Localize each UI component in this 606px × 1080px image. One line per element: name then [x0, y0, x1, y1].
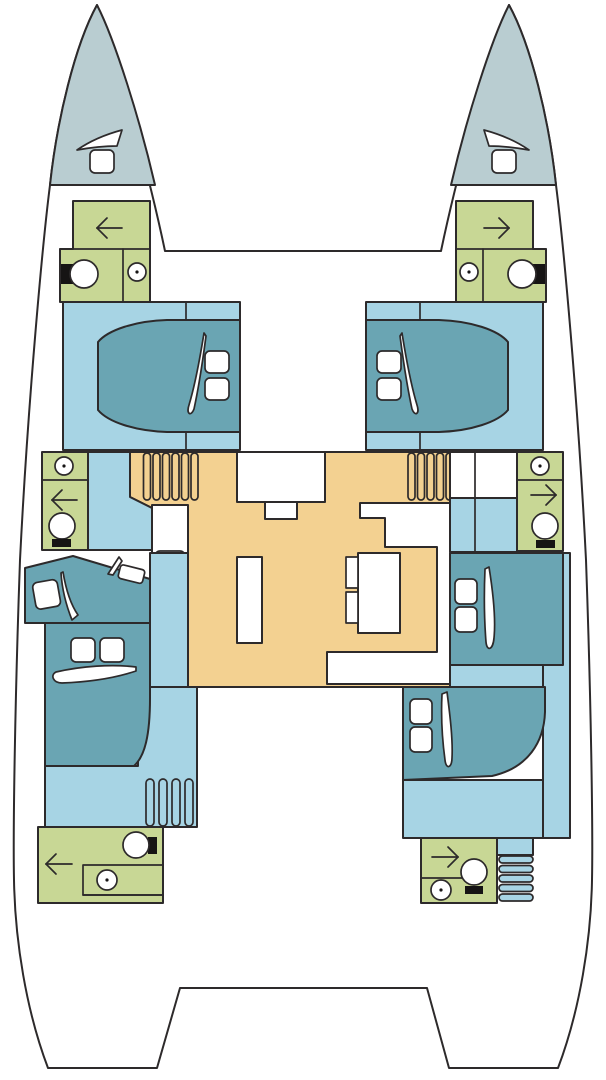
toilet-icon [61, 260, 98, 288]
starboard-mid-berth [450, 553, 563, 665]
starboard-hull-floor-aft [403, 780, 543, 838]
pillow [410, 727, 432, 752]
pillow [410, 699, 432, 724]
island-unit [237, 557, 262, 643]
starboard-aft-head [421, 838, 497, 903]
sink-icon [55, 457, 73, 475]
pillow [205, 378, 229, 400]
port-aft-head [38, 827, 163, 903]
sink-icon [97, 870, 117, 890]
pillow [205, 351, 229, 373]
starboard-forward-cabin [366, 302, 543, 450]
saloon-entry-step [265, 502, 297, 519]
starboard-hull-floor [450, 665, 543, 687]
deck-plan-figure [0, 0, 606, 1080]
starboard-aft-steps [499, 856, 533, 901]
port-hull-floor [150, 553, 188, 687]
double-berth [366, 320, 508, 432]
deck-plan-svg [0, 0, 606, 1080]
starboard-mid-head [517, 452, 563, 551]
saloon-entry-unit [237, 452, 325, 502]
port-aft-berth [45, 623, 150, 766]
sink-icon [431, 880, 451, 900]
starboard-bow-hatch-icon [492, 150, 516, 173]
toilet-icon [508, 260, 545, 288]
pillow [455, 579, 477, 604]
sink-icon [128, 263, 146, 281]
pillow [377, 351, 401, 373]
sink-icon [531, 457, 549, 475]
sink-icon [460, 263, 478, 281]
port-mid-head [42, 452, 88, 550]
starboard-hull-corridor [450, 498, 517, 552]
starboard-storage [450, 452, 517, 498]
pillow [100, 638, 124, 662]
pillow [455, 607, 477, 632]
starboard-forward-head [456, 201, 546, 302]
pillow [71, 638, 95, 662]
saloon-table [358, 553, 400, 633]
port-forward-cabin [63, 302, 240, 450]
starboard-hull-floor-aft [497, 838, 533, 855]
stool [346, 592, 358, 623]
pillow [32, 579, 61, 610]
port-bow-hatch-icon [90, 150, 114, 173]
stool [346, 557, 358, 588]
double-berth [98, 320, 240, 432]
port-forward-head [60, 201, 150, 302]
pillow [377, 378, 401, 400]
port-mid-berth [25, 556, 150, 623]
